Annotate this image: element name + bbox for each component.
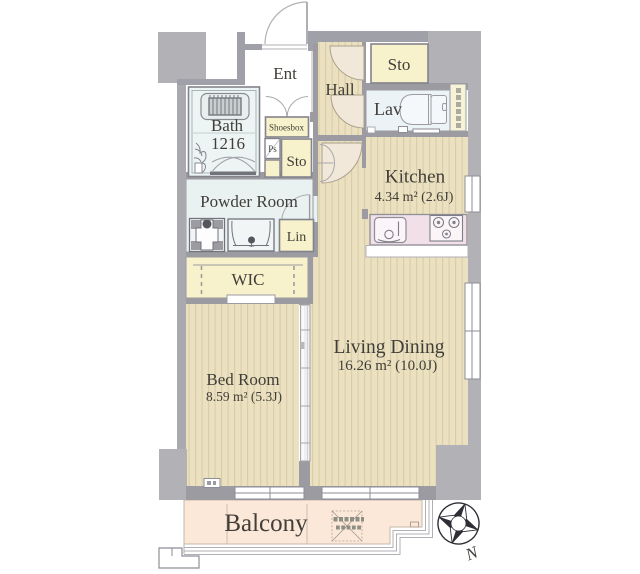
svg-text:Balcony: Balcony <box>224 510 308 537</box>
svg-text:Hall: Hall <box>325 80 355 99</box>
svg-text:Kitchen: Kitchen <box>385 167 446 188</box>
svg-text:Lav: Lav <box>374 99 402 119</box>
svg-text:1216: 1216 <box>211 134 245 153</box>
svg-text:Bath: Bath <box>211 116 244 135</box>
svg-text:Ent: Ent <box>273 64 297 83</box>
svg-text:4.34 m² (2.6J): 4.34 m² (2.6J) <box>375 190 454 205</box>
svg-text:Bed Room: Bed Room <box>206 370 279 389</box>
svg-text:Lin: Lin <box>287 230 306 245</box>
svg-text:8.59 m² (5.3J): 8.59 m² (5.3J) <box>206 389 282 404</box>
svg-text:WIC: WIC <box>231 270 264 289</box>
svg-text:Sto: Sto <box>286 154 306 170</box>
svg-text:Shoesbox: Shoesbox <box>269 123 305 133</box>
svg-text:Ps: Ps <box>268 144 277 154</box>
svg-text:Powder Room: Powder Room <box>200 192 298 211</box>
svg-text:Sto: Sto <box>388 55 411 74</box>
svg-text:16.26 m² (10.0J): 16.26 m² (10.0J) <box>338 358 438 374</box>
svg-text:Living Dining: Living Dining <box>333 337 444 358</box>
